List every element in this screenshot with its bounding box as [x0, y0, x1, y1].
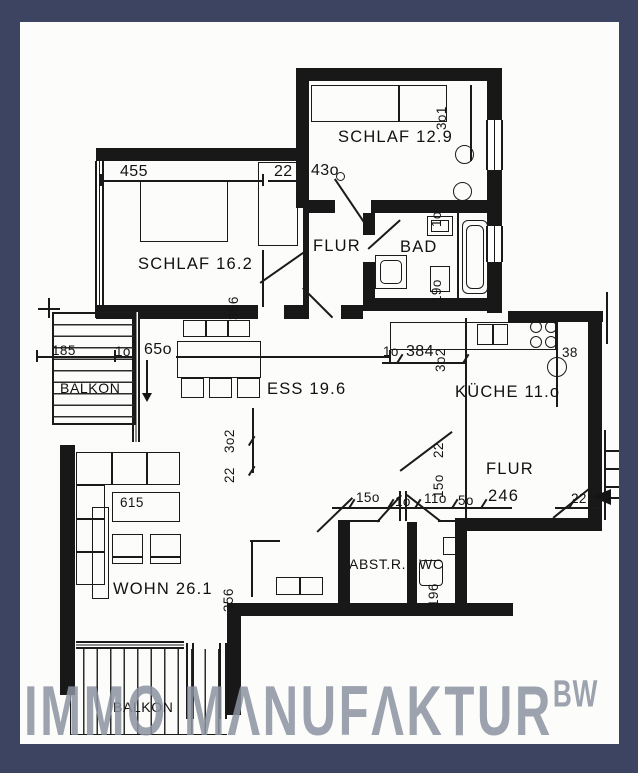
cupboard	[92, 507, 109, 599]
window	[486, 120, 503, 170]
dimension-label: 19o	[429, 279, 444, 303]
dimension-label: 384	[406, 343, 434, 361]
dimension-line	[100, 174, 102, 186]
frame-border-top	[0, 0, 638, 22]
wall	[309, 200, 335, 213]
wall	[407, 522, 417, 607]
kitchen-appliance	[492, 324, 494, 345]
armchair	[112, 534, 143, 564]
stairwell-line	[606, 450, 619, 452]
chair	[181, 378, 204, 398]
dimension-label: 22	[222, 467, 237, 483]
wall	[455, 520, 467, 608]
dimension-leader	[146, 360, 148, 394]
stairwell-line	[604, 430, 606, 520]
window	[76, 641, 184, 649]
dimension-label: 1o	[115, 344, 131, 359]
stool	[455, 145, 474, 164]
room-label-wc: WC	[419, 556, 444, 572]
dimension-label: 65o	[144, 341, 172, 359]
door-swing	[260, 249, 308, 283]
dimension-label: 1o	[395, 494, 411, 509]
dimension-label: 356	[226, 296, 241, 320]
wall	[96, 148, 309, 161]
sideboard	[183, 320, 250, 337]
bathtub	[466, 225, 484, 289]
dimension-label: 3o2	[222, 429, 237, 453]
armchair	[112, 556, 143, 558]
tick	[248, 466, 255, 476]
sideboard	[205, 320, 207, 337]
wall	[227, 603, 345, 616]
radiator	[299, 577, 301, 595]
room-area-flur-lower: 246	[488, 487, 519, 506]
dimension-line	[457, 213, 459, 298]
room-label-schlaf-left: SCHLAF 16.2	[138, 255, 253, 274]
dimension-label: 15o	[431, 474, 446, 498]
wall	[296, 68, 500, 81]
dimension-label: 15o	[356, 490, 380, 505]
sofa	[146, 452, 148, 485]
armchair	[150, 534, 181, 564]
room-label-bad: BAD	[400, 238, 438, 257]
dining-table	[177, 341, 261, 378]
balcony-railing	[52, 312, 136, 425]
sideboard	[227, 320, 229, 337]
dimension-line	[251, 540, 253, 597]
chair	[209, 378, 232, 398]
frame-border-bottom	[0, 744, 638, 773]
frame-border-right	[619, 0, 638, 773]
sofa	[111, 452, 113, 485]
stove-burner	[530, 336, 542, 348]
room-label-wohn: WOHN 26.1	[113, 580, 213, 599]
sofa	[76, 452, 180, 485]
dimension-label: 455	[120, 163, 148, 181]
wall	[363, 213, 375, 235]
dimension-label: 38	[562, 345, 578, 360]
stairwell-line	[606, 468, 619, 470]
armchair	[150, 556, 181, 558]
room-label-flur-lower: FLUR	[486, 460, 534, 479]
dimension-label: 3o1	[434, 106, 449, 130]
dimension-label: 22	[431, 442, 446, 458]
dimension-line	[250, 540, 280, 542]
dimension-label: 185	[52, 343, 76, 358]
wall	[487, 68, 502, 313]
wall	[284, 305, 309, 319]
cistern	[443, 537, 459, 555]
room-label-ess: ESS 19.6	[267, 380, 346, 399]
dimension-label: 43o	[311, 162, 339, 180]
dimension-label: 3o2	[433, 348, 448, 372]
stairwell-line	[606, 486, 619, 488]
stairwell-line	[606, 292, 608, 344]
stool	[453, 182, 472, 201]
dimension-line	[48, 298, 50, 318]
bed	[311, 85, 447, 122]
watermark-text: IMMO MΛNUFΛKTUR	[24, 671, 553, 750]
dimension-label: 196	[426, 583, 441, 607]
room-label-schlaf-top: SCHLAF 12.9	[338, 128, 453, 147]
wall	[341, 305, 363, 319]
kitchen-sink	[547, 357, 567, 377]
room-label-flur-upper: FLUR	[313, 237, 361, 256]
room-label-kueche: KÜCHE 11.o	[455, 383, 560, 402]
entrance-arrow-icon	[592, 489, 611, 505]
bed	[398, 85, 400, 122]
stove-burner	[545, 336, 557, 348]
stove-burner	[530, 321, 542, 333]
dimension-line	[132, 350, 134, 362]
chair	[237, 378, 260, 398]
bed	[140, 180, 228, 242]
arrow-down-icon	[142, 393, 152, 402]
wall	[330, 603, 513, 616]
room-label-balkon-left: BALKON	[60, 380, 120, 396]
floorplan-scan: SCHLAF 12.9 SCHLAF 16.2 FLUR BAD BALKON …	[0, 0, 638, 773]
dimension-label: 1o	[383, 344, 399, 359]
floorplan-drawing: SCHLAF 12.9 SCHLAF 16.2 FLUR BAD BALKON …	[0, 0, 638, 773]
window	[486, 226, 503, 262]
dimension-label: 22	[274, 163, 293, 181]
frame-border-left	[0, 0, 20, 773]
dimension-label: 5o	[458, 493, 474, 508]
door-swing	[334, 178, 365, 224]
dimension-label: 22	[571, 491, 587, 506]
sink	[380, 260, 402, 284]
dimension-label: 1o	[429, 211, 444, 227]
stove-burner	[545, 321, 557, 333]
room-label-abstellraum: ABST.R.	[349, 556, 406, 572]
dimension-label: 356	[221, 588, 236, 612]
dimension-line	[36, 350, 38, 362]
wall	[455, 518, 602, 531]
watermark-suffix: BW	[553, 672, 598, 714]
dimension-label: 615	[120, 495, 144, 510]
